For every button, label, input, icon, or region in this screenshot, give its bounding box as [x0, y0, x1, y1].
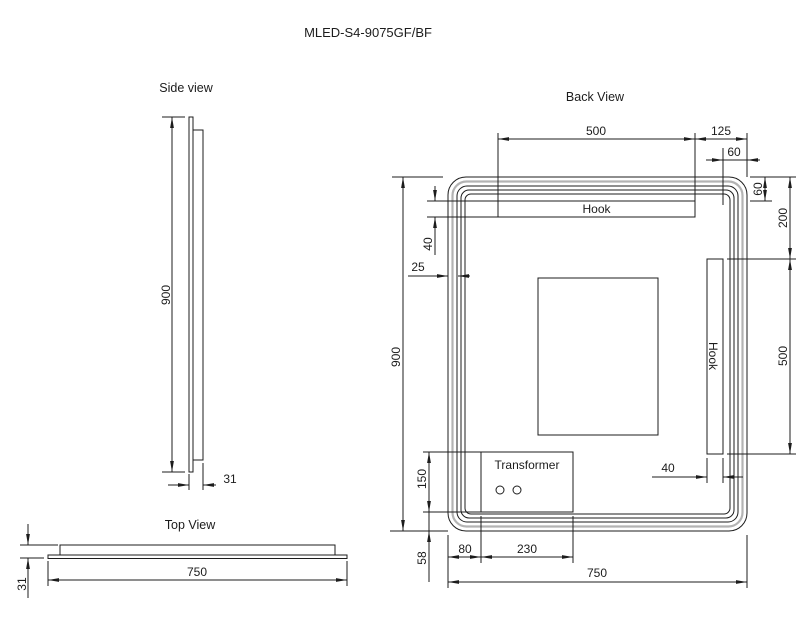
- side-hook-label: Hook: [706, 342, 720, 371]
- top-view-glass-outline: [48, 555, 347, 559]
- technical-drawing-page: MLED-S4-9075GF/BF Side view 900 31 Top V…: [0, 0, 811, 618]
- dim-side-thickness: 31: [223, 472, 237, 486]
- dim-top-hook-to-edge: 125: [711, 124, 731, 138]
- mirror-drawing: MLED-S4-9075GF/BF Side view 900 31 Top V…: [0, 0, 811, 618]
- dim-top-hook-height: 40: [421, 237, 435, 251]
- dim-top-hook-width: 500: [586, 124, 606, 138]
- dim-transformer-width: 230: [517, 542, 537, 556]
- dim-side-hook-length: 500: [776, 346, 790, 366]
- dim-side-hook-to-edge: 60: [727, 145, 741, 159]
- mirror-outline: [448, 177, 747, 531]
- dim-top-edge-to-hook: 60: [751, 182, 765, 196]
- side-view-frame-outline: [193, 130, 203, 460]
- side-view-glass-outline: [189, 117, 193, 472]
- dim-frame-inset: 25: [411, 260, 425, 274]
- back-view-label: Back View: [566, 90, 625, 104]
- top-hook-label: Hook: [582, 202, 611, 216]
- inner-component-outline: [538, 278, 658, 435]
- dim-transformer-left-offset: 80: [458, 542, 472, 556]
- dim-top-thickness: 31: [15, 577, 29, 591]
- transformer-hole-icon: [496, 486, 504, 494]
- back-view: Back View Hook Hook Transformer 500 125: [389, 90, 796, 588]
- dim-side-hook-width: 40: [661, 461, 675, 475]
- dim-bottom-offset: 58: [415, 551, 429, 565]
- top-view-label: Top View: [165, 518, 216, 532]
- transformer-hole-icon: [513, 486, 521, 494]
- dim-top-width: 750: [187, 565, 207, 579]
- side-view: Side view 900 31: [159, 81, 237, 490]
- led-strip-outline: [453, 182, 743, 527]
- drawing-title: MLED-S4-9075GF/BF: [304, 25, 432, 40]
- top-view: Top View 750 31: [15, 518, 347, 598]
- dim-back-height: 900: [389, 347, 403, 367]
- dim-side-height: 900: [159, 285, 173, 305]
- dim-transformer-height: 150: [415, 469, 429, 489]
- side-view-label: Side view: [159, 81, 213, 95]
- dim-top-to-side-hook: 200: [776, 208, 790, 228]
- transformer-label: Transformer: [495, 458, 560, 472]
- dim-back-width: 750: [587, 566, 607, 580]
- top-view-frame-outline: [60, 545, 335, 555]
